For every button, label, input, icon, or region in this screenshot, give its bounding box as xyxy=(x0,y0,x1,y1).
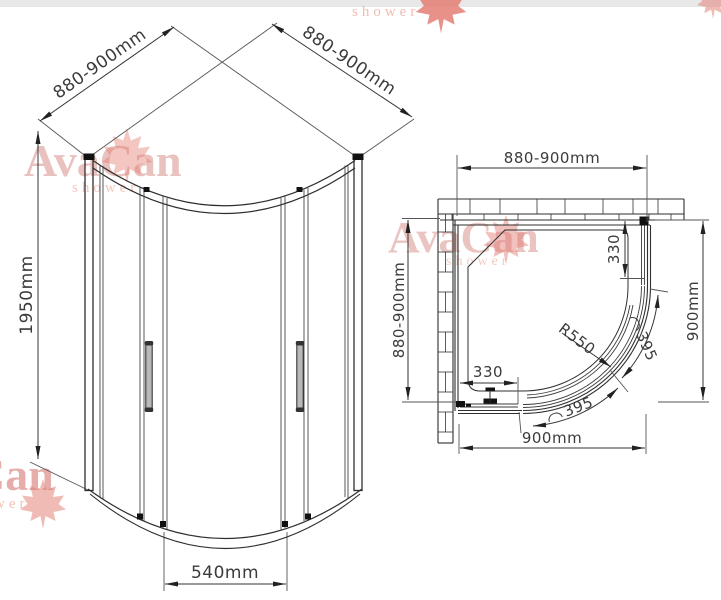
handle-cap xyxy=(145,408,153,413)
right-post-cap xyxy=(353,154,364,161)
handle-cap xyxy=(296,341,304,346)
handle-cap xyxy=(145,341,153,346)
dim-text: 880-900mm xyxy=(390,262,408,358)
drawing-sheet: AvaCan shower AvaCan shower Can wer show… xyxy=(0,0,721,600)
maple-leaf-icon xyxy=(20,479,66,529)
handle-cap xyxy=(296,408,304,413)
dim-text: 900mm xyxy=(522,429,582,447)
dim-text: 900mm xyxy=(684,281,702,341)
right-post xyxy=(354,158,362,491)
door-roller xyxy=(297,187,303,192)
front-dim-height: 1950mm xyxy=(17,255,37,334)
glass-panel-edges xyxy=(100,166,348,530)
left-post xyxy=(85,158,93,491)
maple-leaf-icon xyxy=(697,0,721,19)
plan-dim-depth-right: 900mm xyxy=(684,281,702,341)
door-guide xyxy=(137,514,143,520)
dim-text: 1950mm xyxy=(17,255,37,334)
plan-dim-width-top: 880-900mm xyxy=(504,149,600,167)
door-guide xyxy=(282,521,288,527)
dim-text: 540mm xyxy=(191,563,259,583)
door-handles xyxy=(145,341,304,412)
bottom-rail xyxy=(88,489,362,549)
left-door-handle xyxy=(146,344,152,410)
maple-leaf-icon xyxy=(102,128,153,183)
plan-dim-fixed-bottom: 330 xyxy=(473,363,503,381)
dim-text: 330 xyxy=(605,234,623,264)
dim-text: 330 xyxy=(473,363,503,381)
arc-length-symbol-icon xyxy=(630,315,642,332)
door-guide xyxy=(305,514,311,520)
door-guide xyxy=(160,521,166,527)
technical-drawing xyxy=(0,0,721,600)
maple-leaf-icon xyxy=(483,215,529,265)
left-post-cap xyxy=(84,154,95,161)
front-view-drawing xyxy=(30,23,414,591)
front-extension-lines xyxy=(30,23,414,591)
arc-length-symbol-icon xyxy=(546,410,563,422)
plan-dim-fixed-right: 330 xyxy=(605,234,623,264)
plan-dim-depth-left: 880-900mm xyxy=(390,262,408,358)
front-dim-door-width: 540mm xyxy=(191,563,259,583)
door-roller xyxy=(144,187,150,192)
front-dimension-lines xyxy=(38,24,412,584)
plan-dim-width-bottom: 900mm xyxy=(522,429,582,447)
corner-bracket xyxy=(466,404,471,407)
maple-leaf-icon xyxy=(416,0,467,33)
right-door-handle xyxy=(297,344,303,410)
dim-text: 880-900mm xyxy=(504,149,600,167)
corner-bracket xyxy=(456,401,465,407)
